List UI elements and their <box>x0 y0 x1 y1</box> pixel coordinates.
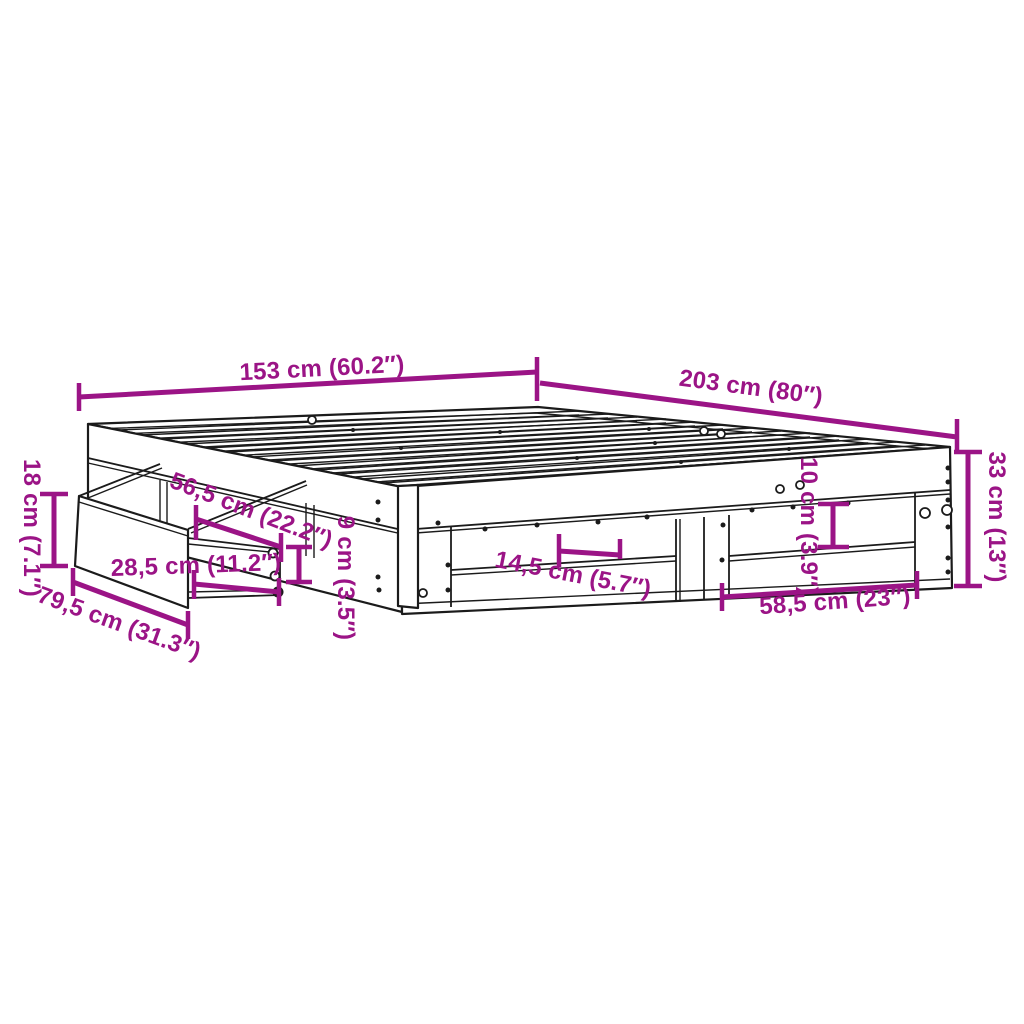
dimension-label-rail-height: 9 cm (3.5″) <box>331 516 359 640</box>
dimension-label-drawer-front-height: 18 cm (7.1″) <box>17 459 45 597</box>
dimension-diagram: 153 cm (60.2″) 203 cm (80″) 33 cm (13″) … <box>0 0 1024 1024</box>
dimension-label-shelf-gap-height: 10 cm (3.9″) <box>794 457 822 595</box>
bed-frame-drawing <box>0 0 1024 1024</box>
dimension-label-drawer-inner-depth: 28,5 cm (11.2″) <box>110 549 281 583</box>
dimension-label-height: 33 cm (13″) <box>982 451 1010 582</box>
